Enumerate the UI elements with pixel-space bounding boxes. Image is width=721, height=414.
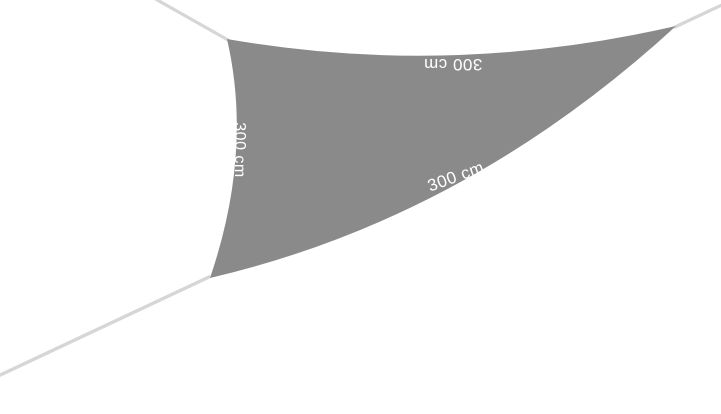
product-image-canvas: 300 cm 300 cm 300 cm <box>0 0 721 414</box>
rope-top-right <box>675 4 721 27</box>
dimension-label-top-edge: 300 cm <box>424 54 483 74</box>
dimension-label-left-edge: 300 cm <box>230 122 248 177</box>
rope-bottom-left <box>0 277 209 377</box>
rope-top-left <box>152 0 228 40</box>
shade-sail-scene <box>0 0 721 414</box>
